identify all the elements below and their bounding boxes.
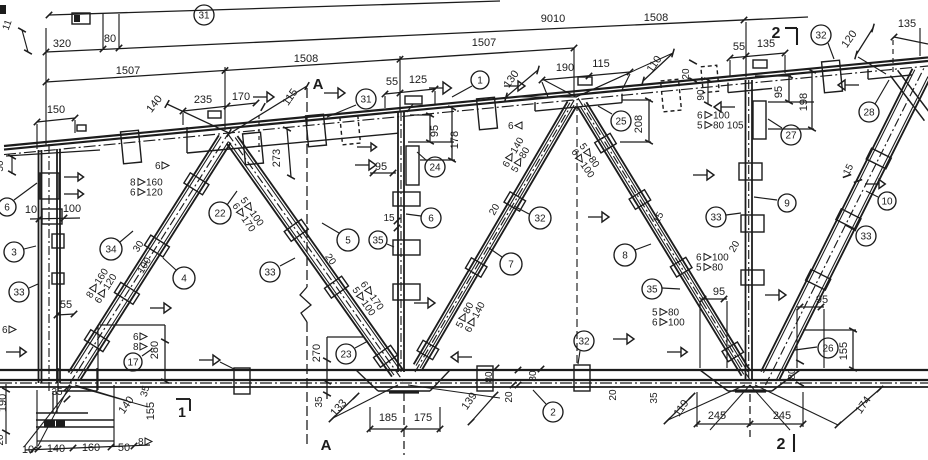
svg-text:6: 6: [155, 161, 161, 172]
svg-text:3: 3: [11, 248, 17, 259]
svg-text:35: 35: [51, 387, 63, 398]
svg-text:160: 160: [82, 442, 100, 454]
svg-text:9010: 9010: [541, 13, 565, 25]
svg-text:95: 95: [713, 286, 725, 298]
svg-text:80 105: 80 105: [713, 121, 744, 132]
svg-text:170: 170: [232, 91, 250, 103]
svg-text:1507: 1507: [116, 65, 140, 77]
svg-text:80: 80: [787, 368, 798, 380]
svg-text:10: 10: [25, 204, 37, 216]
svg-text:135: 135: [757, 38, 775, 50]
svg-text:31: 31: [198, 11, 210, 22]
svg-text:208: 208: [633, 115, 645, 133]
svg-text:8: 8: [622, 251, 628, 262]
svg-text:115: 115: [592, 58, 610, 70]
svg-text:35: 35: [646, 285, 658, 296]
svg-text:80: 80: [484, 371, 495, 383]
svg-text:7: 7: [508, 260, 514, 271]
svg-text:33: 33: [13, 288, 25, 299]
svg-text:235: 235: [194, 94, 212, 106]
svg-text:32: 32: [578, 337, 590, 348]
svg-text:100: 100: [63, 203, 81, 215]
svg-text:270: 270: [311, 344, 323, 362]
svg-text:1: 1: [477, 76, 483, 87]
svg-text:34: 34: [105, 245, 117, 256]
svg-text:90: 90: [696, 89, 707, 101]
svg-text:24: 24: [429, 163, 441, 174]
svg-text:20: 20: [504, 391, 515, 403]
svg-text:320: 320: [53, 38, 71, 50]
svg-text:273: 273: [271, 149, 283, 167]
svg-text:35: 35: [314, 396, 325, 408]
svg-text:5: 5: [696, 263, 702, 274]
svg-text:55: 55: [60, 299, 72, 311]
svg-text:1507: 1507: [472, 37, 496, 49]
svg-text:120: 120: [146, 188, 163, 199]
svg-text:190: 190: [0, 394, 9, 412]
svg-text:50: 50: [0, 160, 6, 172]
svg-text:175: 175: [414, 412, 432, 424]
svg-text:6: 6: [130, 188, 136, 199]
svg-text:35: 35: [649, 392, 660, 404]
svg-text:55: 55: [733, 41, 745, 53]
svg-text:245: 245: [708, 410, 726, 422]
svg-text:10: 10: [22, 444, 34, 455]
svg-text:55: 55: [386, 76, 398, 88]
svg-text:150: 150: [47, 104, 65, 116]
svg-text:33: 33: [710, 213, 722, 224]
svg-text:17: 17: [127, 358, 139, 369]
svg-text:155: 155: [145, 402, 157, 420]
svg-text:23: 23: [340, 350, 352, 361]
svg-text:10: 10: [881, 197, 893, 208]
svg-text:33: 33: [264, 268, 276, 279]
svg-text:32: 32: [815, 31, 827, 42]
svg-text:5: 5: [345, 236, 351, 247]
svg-text:80: 80: [104, 33, 116, 45]
svg-text:1508: 1508: [644, 12, 668, 24]
svg-text:6: 6: [652, 318, 658, 329]
svg-text:125: 125: [409, 74, 427, 86]
svg-text:4: 4: [181, 274, 187, 285]
svg-text:245: 245: [773, 410, 791, 422]
svg-text:178: 178: [449, 131, 461, 149]
svg-text:6: 6: [428, 214, 434, 225]
svg-text:20: 20: [0, 434, 6, 446]
svg-text:28: 28: [863, 108, 875, 119]
svg-text:95: 95: [773, 86, 785, 98]
svg-text:8: 8: [133, 342, 139, 353]
svg-text:1508: 1508: [294, 53, 318, 65]
svg-text:15: 15: [383, 213, 395, 224]
svg-text:80: 80: [712, 263, 724, 274]
svg-text:32: 32: [534, 214, 546, 225]
svg-text:135: 135: [898, 18, 916, 30]
svg-text:35: 35: [372, 236, 384, 247]
svg-text:2: 2: [550, 408, 556, 419]
svg-text:185: 185: [379, 412, 397, 424]
svg-text:95: 95: [375, 161, 387, 173]
svg-text:100: 100: [668, 318, 685, 329]
svg-text:A: A: [321, 437, 332, 454]
svg-text:95: 95: [816, 294, 828, 306]
svg-text:50: 50: [118, 442, 130, 454]
svg-text:6: 6: [2, 325, 8, 336]
svg-text:190: 190: [556, 62, 574, 74]
svg-text:155: 155: [838, 342, 850, 360]
svg-text:33: 33: [860, 232, 872, 243]
svg-text:A: A: [313, 76, 324, 93]
svg-text:1: 1: [178, 404, 186, 420]
svg-text:8: 8: [138, 437, 144, 448]
svg-text:140: 140: [47, 443, 65, 455]
svg-text:9: 9: [784, 199, 790, 210]
svg-text:6: 6: [508, 121, 514, 132]
svg-text:6: 6: [4, 203, 10, 214]
svg-text:25: 25: [615, 117, 627, 128]
svg-text:27: 27: [785, 131, 797, 142]
svg-text:20: 20: [608, 389, 619, 401]
svg-text:95: 95: [429, 125, 441, 137]
svg-text:5: 5: [697, 121, 703, 132]
svg-text:22: 22: [214, 209, 226, 220]
svg-text:26: 26: [822, 344, 834, 355]
svg-text:2: 2: [777, 436, 786, 453]
svg-text:31: 31: [360, 95, 372, 106]
